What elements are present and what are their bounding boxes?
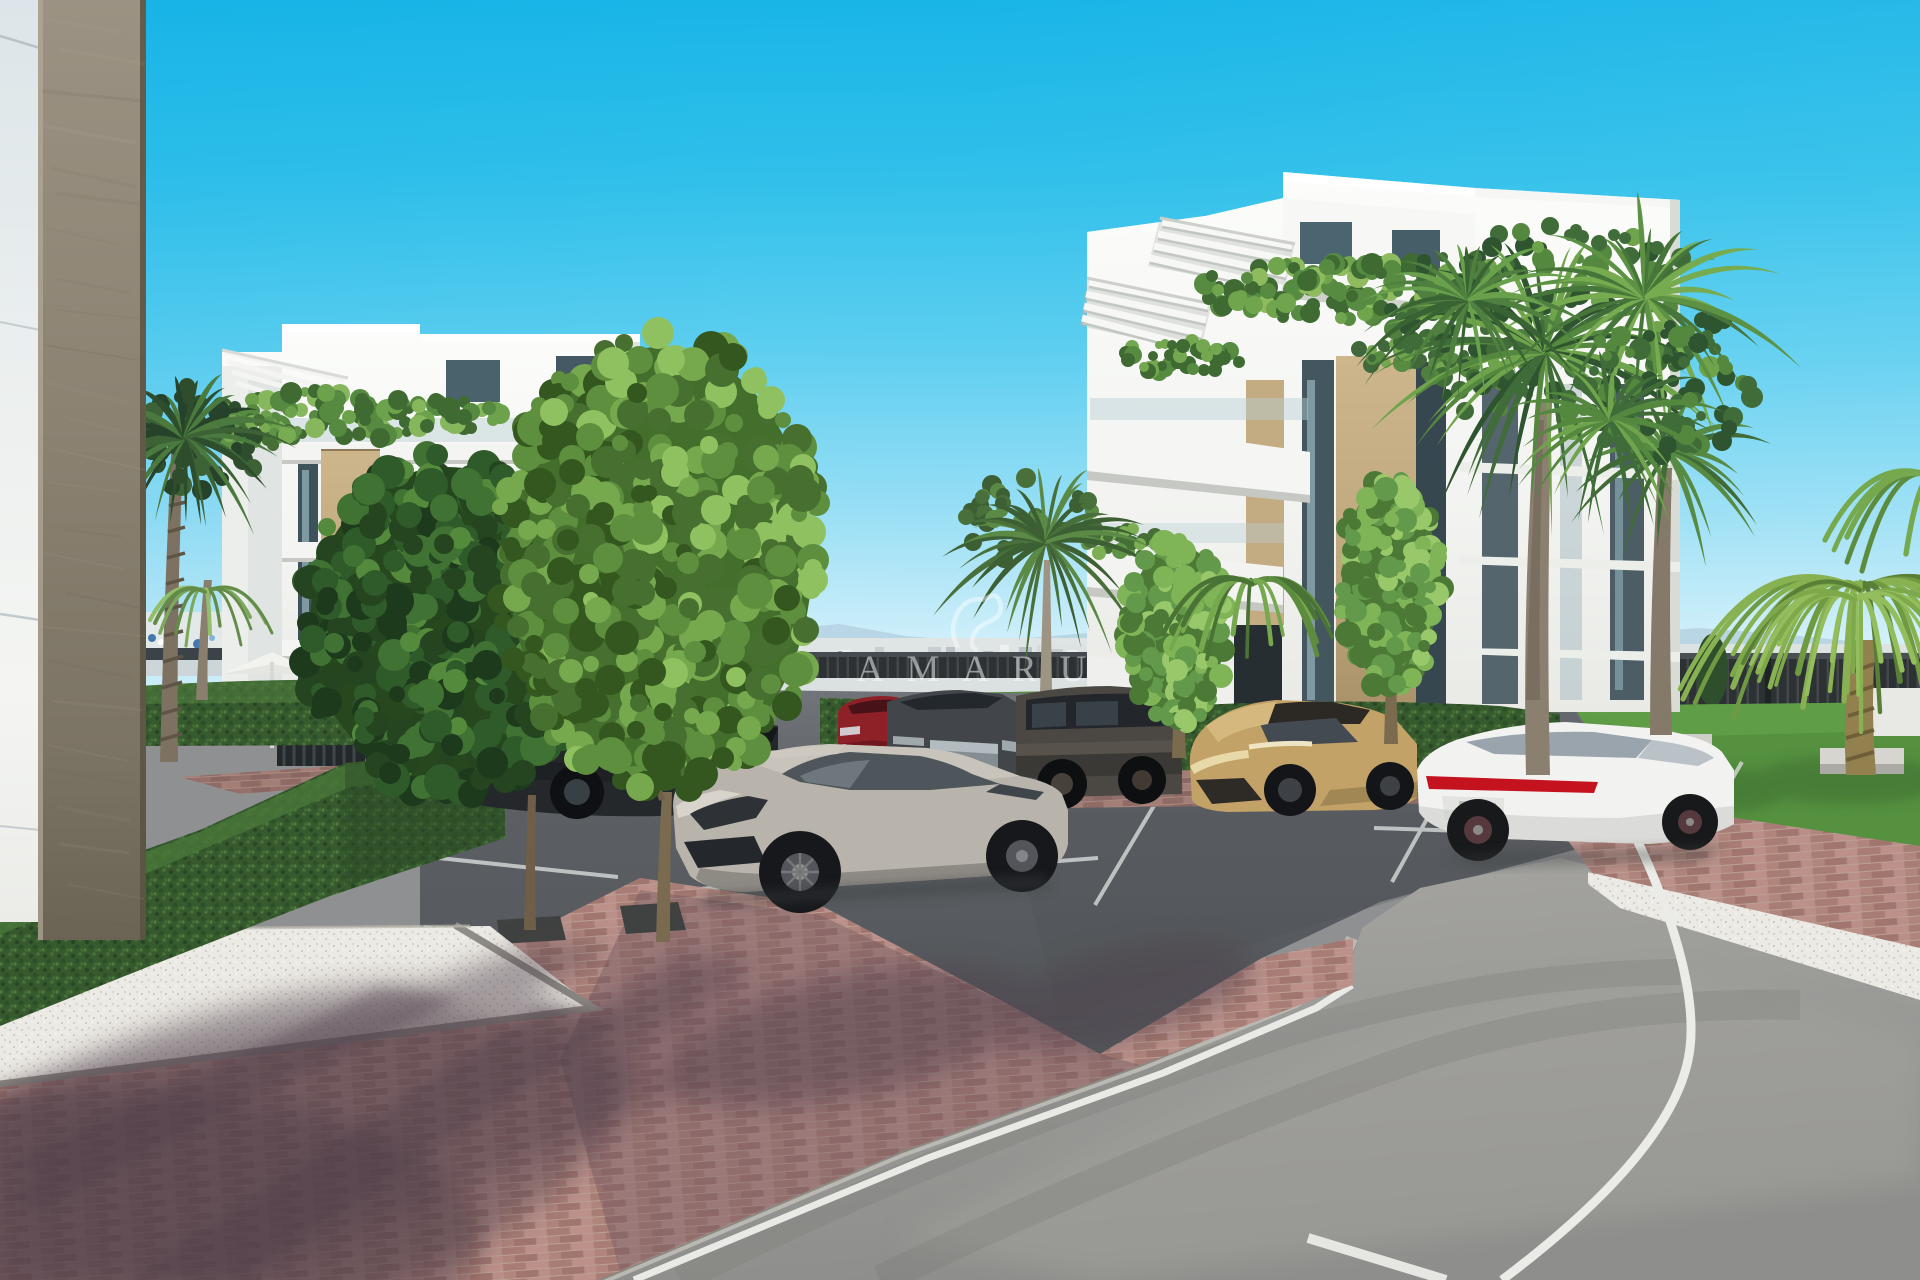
svg-text:AMARU: AMARU bbox=[857, 649, 1110, 690]
